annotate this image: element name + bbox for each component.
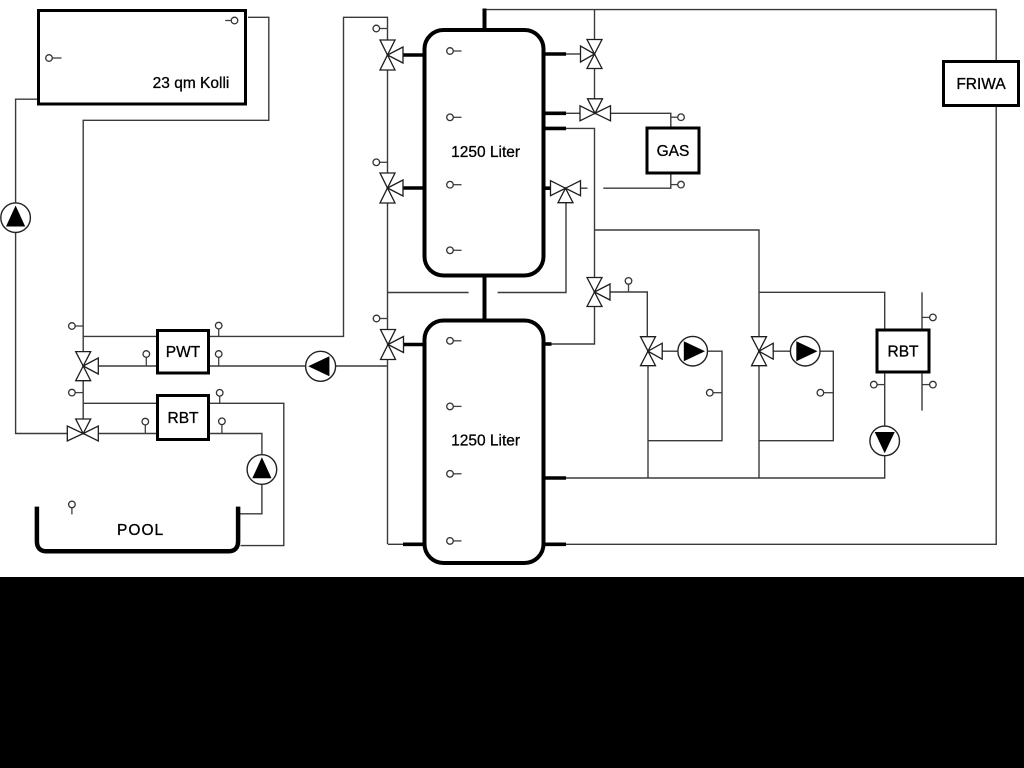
- svg-text:23 qm Kolli: 23 qm Kolli: [153, 75, 230, 92]
- svg-text:RBT: RBT: [888, 344, 920, 361]
- svg-text:POOL: POOL: [117, 522, 164, 539]
- svg-text:RBT: RBT: [168, 410, 200, 427]
- svg-text:PWT: PWT: [166, 344, 201, 361]
- svg-text:1250 Liter: 1250 Liter: [451, 433, 520, 450]
- svg-text:1250 Liter: 1250 Liter: [451, 144, 520, 161]
- svg-text:FRIWA: FRIWA: [956, 76, 1006, 93]
- svg-text:GAS: GAS: [657, 143, 690, 160]
